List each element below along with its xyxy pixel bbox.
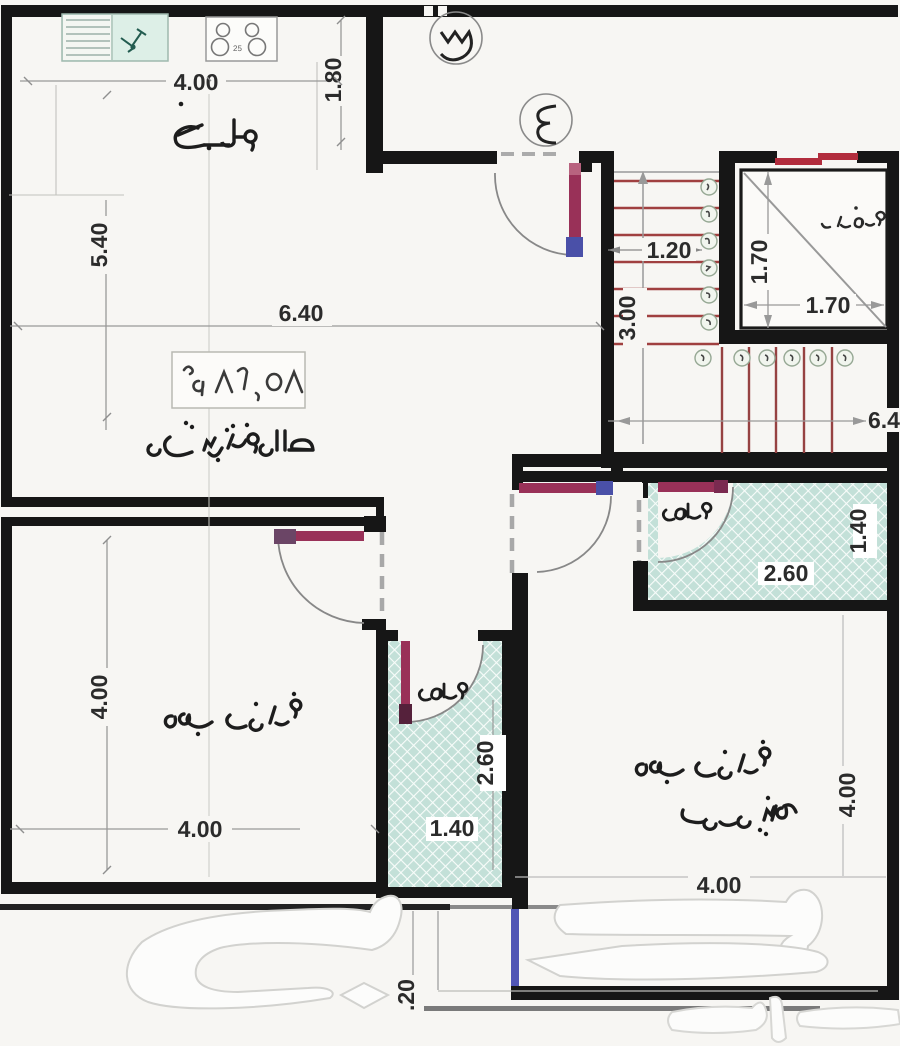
svg-text:6.40: 6.40 (279, 300, 324, 326)
svg-text:1.20: 1.20 (647, 237, 692, 263)
svg-text:1.80: 1.80 (320, 58, 346, 103)
svg-text:4.00: 4.00 (174, 69, 219, 95)
svg-text:4.00: 4.00 (697, 872, 742, 898)
svg-text:1.40: 1.40 (430, 815, 475, 841)
svg-text:2.60: 2.60 (764, 560, 809, 586)
svg-text:5.40: 5.40 (86, 223, 112, 268)
svg-text:6.4: 6.4 (868, 407, 900, 433)
svg-text:1.40: 1.40 (845, 509, 871, 554)
svg-text:25: 25 (233, 44, 242, 53)
svg-text:4.00: 4.00 (86, 675, 112, 720)
svg-text:1.70: 1.70 (746, 240, 772, 285)
svg-text:.20: .20 (393, 979, 419, 1011)
svg-text:2.60: 2.60 (472, 741, 498, 786)
svg-text:3.00: 3.00 (614, 296, 640, 341)
svg-text:4.00: 4.00 (834, 773, 860, 818)
svg-text:4.00: 4.00 (178, 816, 223, 842)
svg-text:1.70: 1.70 (806, 292, 851, 318)
